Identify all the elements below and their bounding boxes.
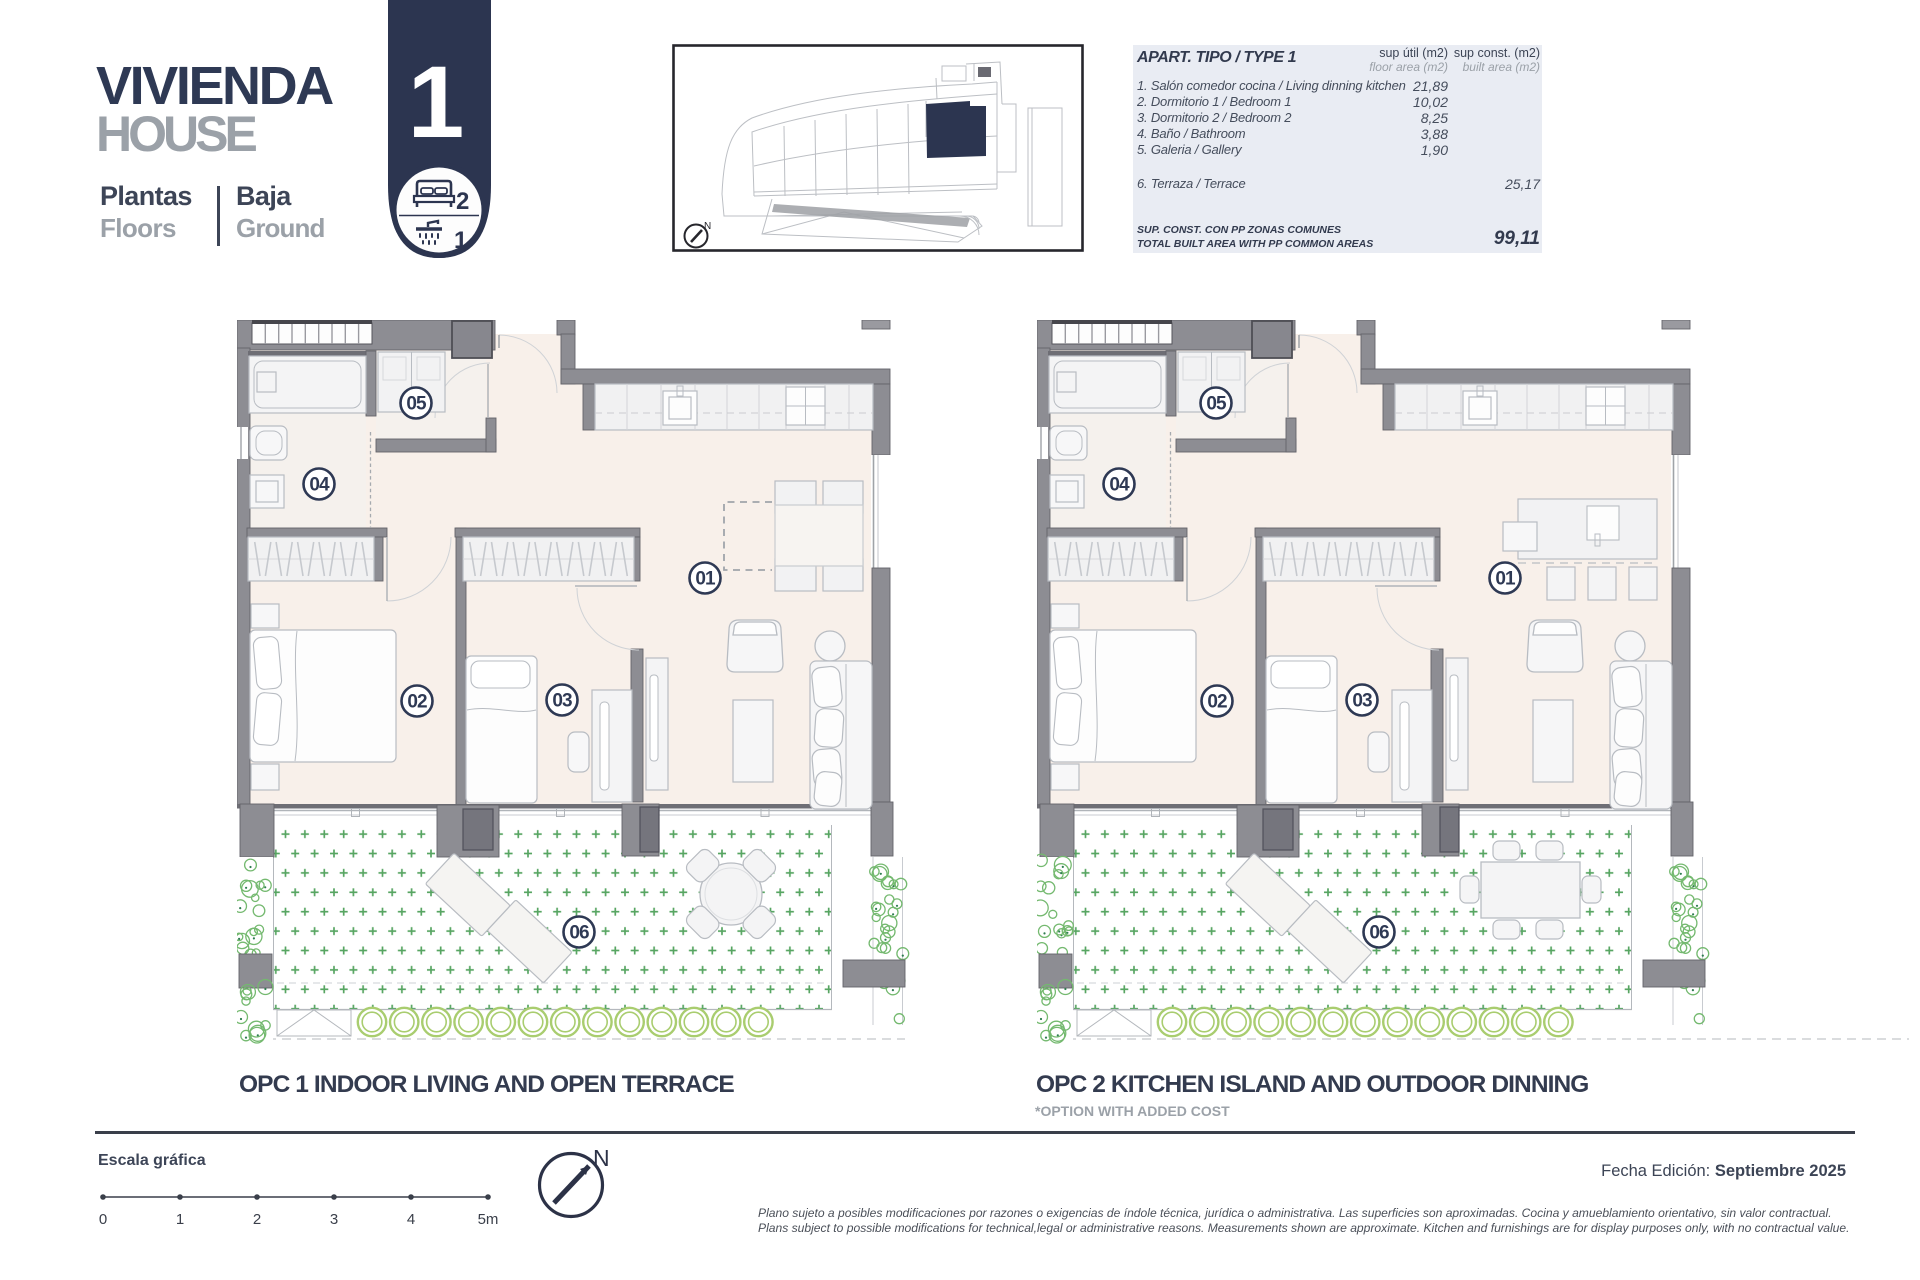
svg-text:5m: 5m (478, 1211, 499, 1228)
svg-text:03: 03 (552, 691, 572, 712)
svg-text:04: 04 (1109, 475, 1130, 496)
svg-text:2: 2 (456, 188, 469, 215)
svg-text:3: 3 (330, 1211, 338, 1228)
svg-text:02: 02 (407, 692, 427, 713)
svg-text:N: N (593, 1145, 610, 1171)
svg-text:1: 1 (408, 45, 465, 159)
svg-text:05: 05 (406, 394, 427, 415)
svg-text:1: 1 (454, 227, 467, 254)
svg-text:1: 1 (176, 1211, 184, 1228)
svg-text:04: 04 (309, 475, 330, 496)
svg-text:03: 03 (1352, 691, 1372, 712)
svg-text:02: 02 (1207, 692, 1227, 713)
svg-text:06: 06 (569, 923, 589, 944)
svg-text:N: N (704, 221, 711, 232)
svg-text:05: 05 (1206, 394, 1227, 415)
svg-text:06: 06 (1369, 923, 1389, 944)
svg-text:01: 01 (1495, 569, 1516, 590)
svg-text:2: 2 (253, 1211, 261, 1228)
svg-text:01: 01 (695, 569, 716, 590)
svg-text:0: 0 (99, 1211, 107, 1228)
svg-text:4: 4 (407, 1211, 415, 1228)
